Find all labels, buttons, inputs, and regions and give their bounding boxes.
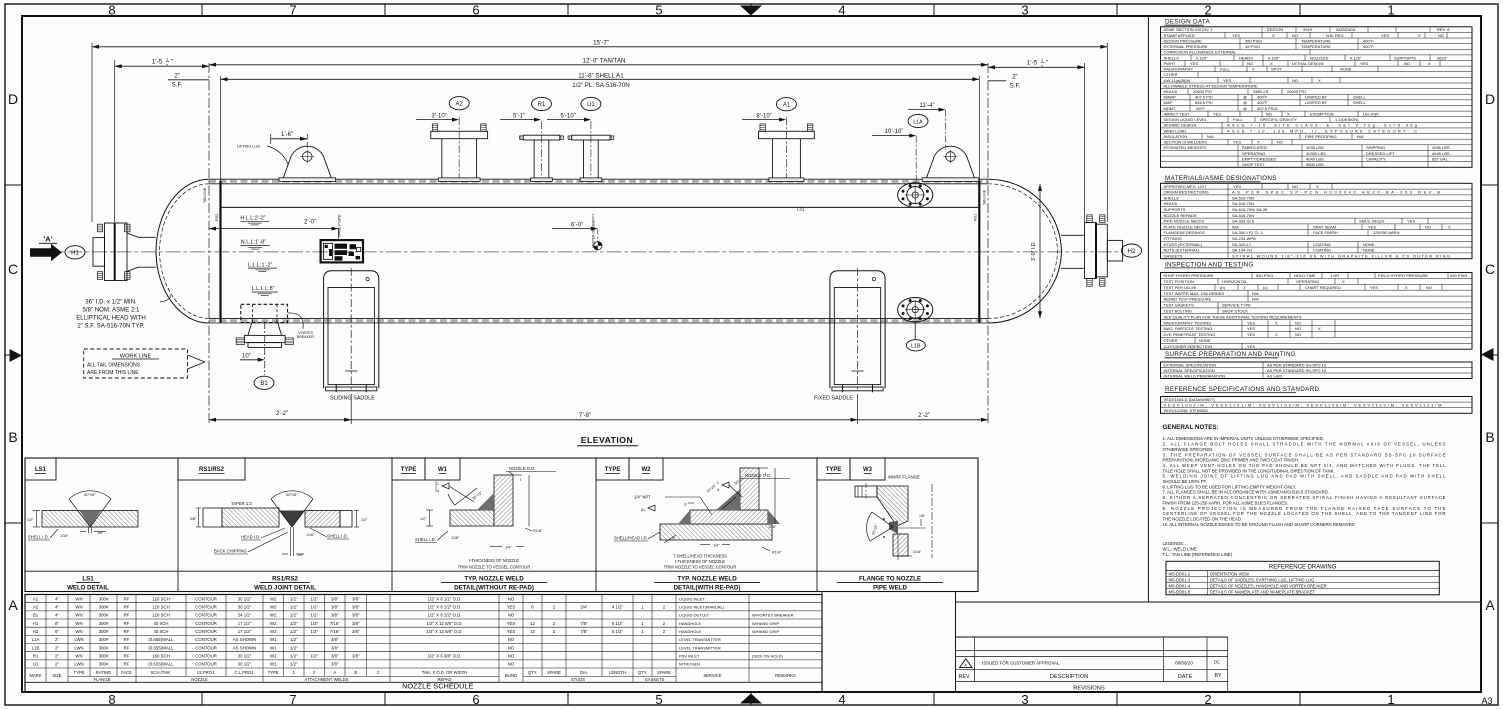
svg-text:LWN: LWN	[74, 645, 83, 650]
svg-text:S.F.: S.F.	[172, 82, 183, 89]
svg-text:WN: WN	[75, 613, 82, 618]
svg-text:SPARE: SPARE	[547, 670, 561, 675]
svg-text:350 PSIG: 350 PSIG	[1245, 38, 1262, 43]
svg-text:TEMPERATURE: TEMPERATURE	[1301, 44, 1331, 49]
svg-text:10’-10”: 10’-10”	[885, 129, 904, 135]
svg-text:2": 2"	[55, 662, 59, 667]
svg-text:WNRF FLANGE: WNRF FLANGE	[888, 475, 920, 480]
svg-text:NO: NO	[508, 645, 515, 650]
svg-text:ALL TAIL DIMENSIONS: ALL TAIL DIMENSIONS	[87, 362, 141, 368]
svg-text:H.L.L:2’-2”: H.L.L:2’-2”	[240, 216, 265, 222]
svg-text:BACK CHIPPING: BACK CHIPPING	[214, 549, 247, 554]
svg-text:TYPE: TYPE	[605, 467, 621, 473]
svg-text:FINISH FROM 125-250 AARH, FOR: FINISH FROM 125-250 AARH, FOR ALL ASME B…	[1163, 500, 1289, 505]
svg-text:-50°F: -50°F	[1195, 106, 1205, 111]
svg-text:7/16": 7/16"	[330, 629, 340, 634]
svg-text:CHART REQUIRED: CHART REQUIRED	[1305, 285, 1341, 290]
svg-text:NO: NO	[508, 637, 515, 642]
svg-text:(0.655)WALL: (0.655)WALL	[148, 637, 174, 642]
svg-text:CONTOUR: CONTOUR	[195, 654, 217, 659]
svg-text:SIZE: SIZE	[52, 673, 62, 678]
svg-text:TRIM NOZZLE TO VESSEL CONTOUR: TRIM NOZZLE TO VESSEL CONTOUR	[664, 565, 737, 570]
svg-text:SPIRAL WOUND 1/8"-316 SS WITH: SPIRAL WOUND 1/8"-316 SS WITH GRAPHITE F…	[1232, 253, 1450, 258]
svg-text:W1: W1	[270, 645, 277, 650]
svg-text:2": 2"	[55, 637, 59, 642]
svg-text:t-THICKNESS OF NOZZLE: t-THICKNESS OF NOZZLE	[675, 559, 725, 564]
svg-text:CONTOUR: CONTOUR	[195, 645, 217, 650]
svg-text:YES: YES	[1233, 140, 1241, 145]
svg-text:RS1: RS1	[974, 214, 978, 221]
svg-text:120 SCH: 120 SCH	[152, 596, 169, 601]
svg-text:2’-2”: 2’-2”	[918, 413, 930, 419]
svg-text:R1: R1	[33, 654, 39, 659]
svg-text:10350 LBS.: 10350 LBS.	[1306, 151, 1327, 156]
svg-text:10”: 10”	[242, 353, 251, 359]
svg-text:YES: YES	[1360, 61, 1368, 66]
svg-text:1/2": 1/2"	[311, 654, 319, 659]
svg-text:REV. A: REV. A	[1437, 27, 1450, 32]
svg-text:MAP: MAP	[1164, 100, 1173, 105]
svg-text:STUDS (EXTERNAL): STUDS (EXTERNAL)	[1164, 242, 1203, 247]
svg-text:NO: NO	[1292, 184, 1298, 189]
svg-text:HEAD I.D.: HEAD I.D.	[241, 535, 260, 540]
svg-text:MAWP: MAWP	[1164, 95, 1177, 100]
svg-text:1/2": 1/2"	[290, 637, 298, 642]
svg-text:LIQUID INLET: LIQUID INLET	[679, 596, 705, 601]
svg-text:DESIGN PRESSURE: DESIGN PRESSURE	[1164, 38, 1203, 43]
svg-text:TYPE: TYPE	[268, 670, 279, 675]
svg-text:CONTOUR: CONTOUR	[195, 621, 217, 626]
svg-text:QTY.: QTY.	[528, 670, 537, 675]
svg-text:0.125": 0.125"	[1196, 55, 1208, 60]
svg-text:NONE: NONE	[1363, 242, 1375, 247]
svg-text:YES: YES	[1190, 61, 1198, 66]
svg-text:LIMITED BY: LIMITED BY	[1305, 95, 1328, 100]
svg-text:SHELL/HEAD I.D.: SHELL/HEAD I.D.	[614, 536, 648, 541]
svg-text:530 PSIG: 530 PSIG	[1450, 273, 1467, 278]
svg-text:6: 6	[472, 692, 479, 707]
svg-text:WORK LINE: WORK LINE	[120, 353, 152, 359]
svg-text:12: 12	[530, 629, 535, 634]
svg-text:1: 1	[717, 481, 719, 485]
svg-text:PIPE NOZZLE NECKS: PIPE NOZZLE NECKS	[1164, 219, 1205, 224]
svg-text:BLIND: BLIND	[505, 673, 517, 678]
svg-text:1/2": 1/2"	[290, 596, 298, 601]
svg-text:YES: YES	[1247, 332, 1255, 337]
svg-text:W3: W3	[863, 467, 873, 473]
svg-text:5 1/2": 5 1/2"	[612, 621, 624, 626]
svg-text:SHELL: SHELL	[1353, 100, 1366, 105]
svg-text:FULL: FULL	[1220, 67, 1231, 72]
svg-text:2019: 2019	[1303, 27, 1313, 32]
svg-text:ADDENDA: ADDENDA	[1336, 27, 1356, 32]
svg-text:N.L.L:1’-8”: N.L.L:1’-8”	[241, 240, 266, 246]
svg-text:400°F: 400°F	[1257, 95, 1268, 100]
svg-text:BY: BY	[1215, 673, 1222, 679]
svg-text:5’-10”: 5’-10”	[560, 113, 575, 119]
svg-text:SA-320-L7: SA-320-L7	[1232, 242, 1252, 247]
svg-text:RF: RF	[124, 596, 130, 601]
svg-text:U1: U1	[33, 662, 39, 667]
svg-text:NUTS (EXTERNAL): NUTS (EXTERNAL)	[1164, 248, 1200, 253]
svg-text:ASCE 7-10, 138 MPH, II, EXPOSU: ASCE 7-10, 138 MPH, II, EXPOSURE CATEGOR…	[1227, 128, 1417, 133]
svg-text:11’-8” SHELL A1: 11’-8” SHELL A1	[578, 72, 624, 79]
svg-text:IMPACT TEST: IMPACT TEST	[1164, 111, 1191, 116]
svg-text:7/8": 7/8"	[580, 629, 588, 634]
svg-text:1’-5: 1’-5	[1027, 60, 1038, 67]
svg-text:CONTOUR: CONTOUR	[195, 613, 217, 618]
svg-text:TYP. NOZZLE WELD: TYP. NOZZLE WELD	[464, 576, 524, 583]
svg-text:NO: NO	[1295, 332, 1301, 337]
svg-text:L1B: L1B	[911, 344, 921, 350]
svg-text:NO: NO	[1438, 33, 1444, 38]
svg-text:5: 5	[655, 692, 662, 707]
svg-text:X: X	[1275, 332, 1278, 337]
svg-text:X: X	[1275, 320, 1278, 325]
svg-text:X: X	[1257, 140, 1260, 145]
svg-text:AS PER STANDARD SS-SPC 10: AS PER STANDARD SS-SPC 10	[1267, 368, 1327, 373]
svg-text:3/8": 3/8"	[352, 621, 360, 626]
svg-text:PREPARATION, INORGANIC ZINC PR: PREPARATION, INORGANIC ZINC PRIMER AND T…	[1163, 458, 1299, 463]
svg-text:SHELLS: SHELLS	[1164, 55, 1180, 60]
svg-text:4045 LBS.: 4045 LBS.	[1306, 156, 1325, 161]
svg-text:FIXED SADDLE: FIXED SADDLE	[814, 395, 853, 401]
svg-text:2: 2	[1204, 692, 1211, 707]
svg-text:NOZZLES: NOZZLES	[1310, 55, 1329, 60]
svg-text:LEVEL TRANSMITTER: LEVEL TRANSMITTER	[679, 645, 721, 650]
svg-text:X: X	[1243, 285, 1246, 290]
svg-text:300#: 300#	[99, 645, 109, 650]
svg-text:W2: W2	[270, 605, 277, 610]
svg-text:ASME SECTION VIII DIV. 1: ASME SECTION VIII DIV. 1	[1164, 27, 1214, 32]
svg-text:N/A: N/A	[1207, 134, 1214, 139]
svg-text:X: X	[1318, 78, 1321, 83]
svg-text:1/4”: 1/4”	[713, 544, 720, 548]
svg-text:YES: YES	[1232, 33, 1240, 38]
svg-text:FLANGES/FORGINGS: FLANGES/FORGINGS	[1164, 230, 1205, 235]
svg-text:2” S.F. SA-516-70N TYP.: 2” S.F. SA-516-70N TYP.	[77, 323, 144, 330]
svg-text:DESCRIPTION: DESCRIPTION	[1050, 674, 1088, 680]
svg-text:RF: RF	[124, 629, 130, 634]
svg-text:W2: W2	[270, 654, 277, 659]
svg-text:HEADS: HEADS	[1164, 89, 1178, 94]
svg-text:YES: YES	[507, 621, 516, 626]
svg-text:L1B: L1B	[32, 645, 40, 650]
svg-text:1/16”: 1/16”	[451, 536, 460, 540]
svg-text:6’-0”: 6’-0”	[571, 222, 583, 228]
svg-text:4045 LBS.: 4045 LBS.	[1432, 151, 1451, 156]
svg-text:SPARE: SPARE	[657, 670, 671, 675]
svg-text:400°F: 400°F	[1257, 100, 1268, 105]
svg-text:SA-516-70N: SA-516-70N	[1232, 201, 1254, 206]
svg-text:ESTIMATED WEIGHTS: ESTIMATED WEIGHTS	[1164, 145, 1207, 150]
svg-text:(0.655)WALL: (0.655)WALL	[148, 662, 174, 667]
svg-text:ARE FROM THIS LINE: ARE FROM THIS LINE	[87, 370, 139, 376]
svg-text:NO: NO	[508, 596, 515, 601]
svg-text:W2: W2	[270, 596, 277, 601]
svg-text:X: X	[1405, 285, 1408, 290]
svg-text:XRAY SEAM: XRAY SEAM	[1313, 224, 1336, 229]
svg-text:FACE FINISH: FACE FINISH	[1313, 230, 1338, 235]
svg-text:YES: YES	[1370, 285, 1378, 290]
svg-text:0.125": 0.125"	[1350, 55, 1362, 60]
svg-text:1/2": 1/2"	[290, 662, 298, 667]
svg-text:SHOULD BE 100% PT.: SHOULD BE 100% PT.	[1163, 479, 1207, 484]
svg-text:@: @	[1243, 106, 1247, 111]
svg-text:VEDV1003-D (DATASHEET): VEDV1003-D (DATASHEET)	[1164, 397, 1216, 402]
svg-text:6. LIFTING LUG TO BE USED FOR: 6. LIFTING LUG TO BE USED FOR LIFTING EM…	[1163, 484, 1297, 489]
svg-text:SHELL I.D.: SHELL I.D.	[415, 537, 436, 542]
svg-text:FLANGE: FLANGE	[94, 677, 111, 682]
svg-text:2": 2"	[55, 645, 59, 650]
svg-text:1/2": 1/2"	[290, 605, 298, 610]
svg-text:1/2": 1/2"	[290, 629, 298, 634]
svg-text:1/2" X 6 3/8" O.D.: 1/2" X 6 3/8" O.D.	[428, 654, 462, 659]
svg-text:HEADS: HEADS	[1164, 201, 1178, 206]
svg-text:REMARKS: REMARKS	[775, 673, 796, 678]
svg-text:CONTOUR: CONTOUR	[195, 605, 217, 610]
svg-text:WELD DETAIL: WELD DETAIL	[67, 585, 109, 592]
svg-text:BREAKER: BREAKER	[297, 335, 315, 339]
svg-text:C: C	[8, 261, 18, 277]
svg-text:1/2" X 12 5/8" O.D.: 1/2" X 12 5/8" O.D.	[426, 621, 462, 626]
svg-text:MS-DD01-2: MS-DD01-2	[1169, 571, 1191, 576]
svg-text:SUPPORTS: SUPPORTS	[1164, 207, 1186, 212]
svg-text:OTHER: OTHER	[1164, 72, 1178, 77]
svg-text:INTERNAL SPECIFICATION: INTERNAL SPECIFICATION	[1164, 368, 1215, 373]
svg-text:TRIM NOZZLE TO VESSEL CONTOUR: TRIM NOZZLE TO VESSEL CONTOUR	[458, 564, 531, 569]
svg-text:3. THE PREPARATION OF VESSEL: 3. THE PREPARATION OF VESSEL SURFACE SHA…	[1163, 452, 1446, 457]
svg-text:5/8” NOM. ASME 2:1: 5/8” NOM. ASME 2:1	[83, 307, 141, 314]
svg-text:W2: W2	[642, 467, 652, 473]
svg-text:L1A: L1A	[32, 637, 40, 642]
svg-text:ISSUED FOR CUSTOMER APPROVAL: ISSUED FOR CUSTOMER APPROVAL	[982, 661, 1060, 666]
svg-text:7: 7	[289, 692, 296, 707]
svg-text:3/8": 3/8"	[331, 596, 339, 601]
svg-text:C.L.PROJ.: C.L.PROJ.	[234, 670, 254, 675]
svg-text:FULL: FULL	[1233, 117, 1244, 122]
svg-text:TYPE: TYPE	[401, 467, 417, 473]
svg-text:B1: B1	[641, 508, 645, 512]
svg-text:1/2" X 12 5/8" O.D.: 1/2" X 12 5/8" O.D.	[426, 629, 462, 634]
svg-text:9. NOZZLE PROJECTION IS MEASU: 9. NOZZLE PROJECTION IS MEASURED FROM TH…	[1163, 506, 1446, 511]
svg-text:1/2” PL. SA-516-70N: 1/2” PL. SA-516-70N	[572, 82, 629, 89]
svg-text:8: 8	[108, 3, 115, 18]
svg-text:CONTOUR: CONTOUR	[195, 637, 217, 642]
svg-text:STAMP APPLIED: STAMP APPLIED	[1164, 33, 1195, 38]
svg-text:LS1: LS1	[82, 576, 94, 583]
svg-text:DIA.: DIA.	[580, 670, 588, 675]
svg-text:RADIOGRAPHY TESTING: RADIOGRAPHY TESTING	[1164, 320, 1212, 325]
svg-text:”: ”	[1046, 60, 1048, 67]
svg-text:4": 4"	[55, 605, 59, 610]
svg-text:REVISIONS: REVISIONS	[1073, 686, 1105, 692]
svg-text:MS-DD01-3: MS-DD01-3	[1169, 577, 1191, 582]
svg-text:W/VORTEX BREAKER: W/VORTEX BREAKER	[752, 613, 794, 618]
svg-text:1/2": 1/2"	[311, 613, 319, 618]
svg-text:7/8": 7/8"	[580, 621, 588, 626]
svg-text:1: 1	[1387, 692, 1394, 707]
svg-text:W1: W1	[270, 662, 277, 667]
svg-text:5/8”: 5/8”	[190, 517, 197, 521]
svg-text:UW-11(a)(5)(b): UW-11(a)(5)(b)	[1164, 78, 1191, 83]
svg-text:ELLIPTICAL HEAD WITH: ELLIPTICAL HEAD WITH	[76, 315, 146, 322]
svg-text:10. ALL INTERNAL NOZZLE EDGES: 10. ALL INTERNAL NOZZLE EDGES TO BE GROU…	[1163, 522, 1356, 527]
svg-text:B1: B1	[260, 381, 268, 387]
svg-text:5’-1”: 5’-1”	[513, 113, 525, 119]
svg-text:REV.: REV.	[958, 674, 970, 680]
svg-text:RS1/RS2: RS1/RS2	[272, 576, 298, 583]
svg-text:X: X	[1270, 61, 1273, 66]
svg-text:3/8": 3/8"	[352, 596, 360, 601]
svg-text:ALLOWABLE STRESS AT DESIGN TEM: ALLOWABLE STRESS AT DESIGN TEMPERATURE	[1164, 83, 1259, 88]
svg-text:NO: NO	[1425, 224, 1431, 229]
svg-text:08/06/20: 08/06/20	[1175, 661, 1193, 666]
svg-text:NO: NO	[1247, 61, 1253, 66]
svg-text:MATERIALS/ASME DESIGNATIONS: MATERIALS/ASME DESIGNATIONS	[1165, 175, 1277, 182]
svg-text:AS SHOWN: AS SHOWN	[233, 637, 256, 642]
svg-text:DC: DC	[1214, 660, 1220, 665]
svg-text:3/8": 3/8"	[352, 629, 360, 634]
svg-text:LIQUID INLET(MANUAL): LIQUID INLET(MANUAL)	[679, 605, 725, 610]
svg-text:300#: 300#	[99, 629, 109, 634]
svg-text:1/8”: 1/8”	[297, 553, 304, 557]
svg-text:1/2": 1/2"	[311, 621, 319, 626]
svg-text:SPOT: SPOT	[1271, 67, 1282, 72]
svg-text:YES: YES	[1407, 219, 1415, 224]
svg-text:SURFACE PREPARATION AND PAINTI: SURFACE PREPARATION AND PAINTING	[1165, 351, 1296, 358]
svg-text:W.L.: WELD LINE: W.L.: WELD LINE	[1163, 546, 1197, 551]
svg-text:3/8": 3/8"	[352, 605, 360, 610]
svg-text:120 SCH: 120 SCH	[152, 605, 169, 610]
svg-text:SHOP HYDRO PRESSURE: SHOP HYDRO PRESSURE	[1164, 273, 1214, 278]
svg-text:YES: YES	[1368, 224, 1376, 229]
svg-text:YES: YES	[1223, 78, 1231, 83]
svg-text:TALE HOLE SHALL NOT BE PROVIDE: TALE HOLE SHALL NOT BE PROVIDED IN THE L…	[1163, 468, 1335, 473]
svg-text:30 1/2": 30 1/2"	[238, 662, 252, 667]
svg-text:8": 8"	[55, 621, 59, 626]
svg-text:N.B. REG.: N.B. REG.	[1326, 33, 1345, 38]
svg-text:1 HR: 1 HR	[1330, 273, 1339, 278]
svg-text:MDMT: MDMT	[1164, 106, 1177, 111]
svg-text:7’-8”: 7’-8”	[579, 413, 591, 419]
svg-text:4": 4"	[55, 613, 59, 618]
svg-text:SUPPORTS: SUPPORTS	[1394, 55, 1416, 60]
svg-text:REFERENCE SPECIFICATIONS AND S: REFERENCE SPECIFICATIONS AND STANDARD	[1165, 386, 1319, 393]
svg-text:W/HAND GRIP: W/HAND GRIP	[752, 621, 779, 626]
svg-text:H2: H2	[1128, 249, 1136, 255]
svg-text:LEVEL TRANSMITTER: LEVEL TRANSMITTER	[679, 637, 721, 642]
svg-text:TEST WATER MAX. CHLORIDES: TEST WATER MAX. CHLORIDES	[1164, 291, 1225, 296]
svg-text:NOZZLE: NOZZLE	[191, 677, 208, 682]
svg-text:LEGENDS:: LEGENDS:	[1163, 541, 1185, 546]
svg-text:SHELL I.D.: SHELL I.D.	[327, 534, 348, 539]
svg-text:X: X	[1418, 33, 1421, 38]
svg-text:QTY.: QTY.	[638, 670, 647, 675]
svg-text:APPROVED MFG. LIST: APPROVED MFG. LIST	[1164, 184, 1207, 189]
svg-text:1/2": 1/2"	[290, 613, 298, 618]
svg-text:1/16”: 1/16”	[768, 525, 777, 529]
svg-text:ELEVATION: ELEVATION	[581, 435, 633, 445]
svg-text:OPERATING: OPERATING	[1242, 151, 1265, 156]
svg-text:LIMITED BY: LIMITED BY	[1305, 100, 1328, 105]
svg-text:NO: NO	[1295, 326, 1301, 331]
svg-text:8’-10”: 8’-10”	[756, 113, 771, 119]
svg-text:@: @	[1243, 95, 1247, 100]
svg-text:U1: U1	[587, 102, 595, 108]
svg-text:YES: YES	[1233, 184, 1241, 189]
svg-text:NO: NO	[1292, 78, 1298, 83]
svg-text:VORTEX: VORTEX	[298, 331, 313, 335]
svg-text:X: X	[1342, 279, 1345, 284]
svg-text:CENTERLINE OF VESSEL FOR THE N: CENTERLINE OF VESSEL FOR THE NOZZLE LOCA…	[1163, 511, 1446, 516]
svg-text:2’-2”: 2’-2”	[276, 411, 288, 417]
svg-text:TEST BOLTING: TEST BOLTING	[1164, 309, 1193, 314]
svg-text:TYPE: TYPE	[826, 467, 842, 473]
svg-text:TAN LINE: TAN LINE	[203, 187, 207, 203]
svg-text:X: X	[1318, 326, 1321, 331]
svg-text:CUSTOMER INSPECTION: CUSTOMER INSPECTION	[1164, 344, 1212, 349]
svg-text:X: X	[1272, 33, 1275, 38]
svg-text:(SIZE ON HOLD): (SIZE ON HOLD)	[752, 654, 784, 659]
svg-text:A: A	[8, 597, 18, 613]
svg-text:A: A	[964, 662, 967, 667]
svg-text:NO: NO	[1295, 320, 1301, 325]
svg-text:1/2" X 8 1/2" O.D.: 1/2" X 8 1/2" O.D.	[428, 613, 462, 618]
svg-text:FITTINGS: FITTINGS	[1164, 236, 1183, 241]
svg-text:TAPER 1:3: TAPER 1:3	[231, 501, 252, 506]
svg-text:1’-5: 1’-5	[152, 59, 163, 66]
svg-text:3: 3	[1021, 692, 1028, 707]
svg-text:EDITION: EDITION	[1267, 27, 1283, 32]
svg-text:12’-0” TAN/TAN: 12’-0” TAN/TAN	[583, 57, 626, 64]
svg-text:2”: 2”	[1012, 74, 1018, 81]
svg-text:TEST POSITION: TEST POSITION	[1164, 279, 1194, 284]
svg-text:A1: A1	[783, 103, 791, 109]
svg-text:1/16”: 1/16”	[913, 550, 922, 554]
svg-text:1.1(DESIGN): 1.1(DESIGN)	[1335, 117, 1359, 122]
svg-text:A: A	[333, 670, 336, 675]
svg-text:4045 LBS.: 4045 LBS.	[1306, 145, 1325, 150]
svg-text:R1: R1	[538, 102, 546, 108]
svg-text:FACE: FACE	[121, 670, 132, 675]
svg-text:1: 1	[1387, 3, 1394, 18]
svg-text:N/A: N/A	[1252, 291, 1259, 296]
svg-text:300#: 300#	[99, 613, 109, 618]
svg-text:RF: RF	[124, 645, 130, 650]
svg-text:3/4": 3/4"	[580, 605, 588, 610]
svg-text:WN: WN	[75, 621, 82, 626]
svg-text:DETAILS OF NOZZLES, HANDHOLE A: DETAILS OF NOZZLES, HANDHOLE AND VORTEX …	[1210, 584, 1327, 589]
svg-text:WN: WN	[75, 629, 82, 634]
svg-text:1/2”: 1/2”	[361, 518, 368, 522]
svg-text:PSV INLET: PSV INLET	[679, 654, 700, 659]
svg-text:24 1/2": 24 1/2"	[238, 613, 252, 618]
svg-text:DETAILS OF SADDLES, EARTHING L: DETAILS OF SADDLES, EARTHING LUG, LIFTIN…	[1210, 577, 1314, 582]
svg-text:OTHER: OTHER	[1164, 338, 1178, 343]
svg-text:4": 4"	[55, 596, 59, 601]
svg-text:LETHAL DESIGN: LETHAL DESIGN	[1292, 61, 1324, 66]
svg-text:NONE: NONE	[1199, 338, 1211, 343]
svg-text:125/250 AARH: 125/250 AARH	[1373, 230, 1400, 235]
svg-text:RADIOGRAPHY: RADIOGRAPHY	[1164, 67, 1194, 72]
svg-text:INTERNAL WELD PREPARATION: INTERNAL WELD PREPARATION	[1164, 373, 1226, 378]
svg-text:NOZZLE REPADS: NOZZLE REPADS	[1164, 213, 1197, 218]
svg-text:YES: YES	[1381, 33, 1389, 38]
svg-text:NO: NO	[508, 613, 515, 618]
svg-text:4: 4	[838, 692, 845, 707]
svg-text:SHOP TEST: SHOP TEST	[1242, 162, 1265, 167]
